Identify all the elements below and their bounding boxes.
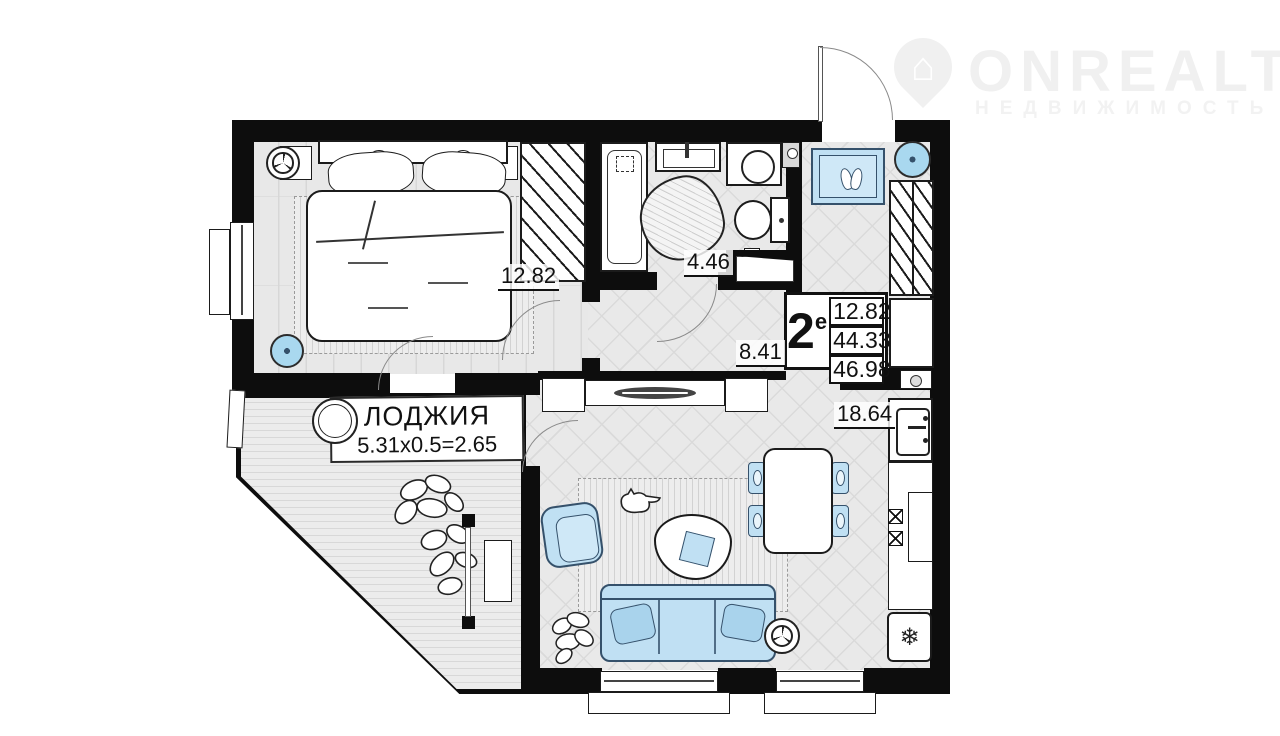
area-label-kitchen-living: 18.64 <box>834 402 895 429</box>
snowflake-icon: ❄ <box>889 614 930 660</box>
sofa <box>600 584 776 662</box>
console-right-cabinet <box>725 378 768 412</box>
loggia-title: ЛОДЖИЯ <box>364 400 491 432</box>
living-window-1 <box>600 671 718 692</box>
wall-bedroom-bottom-a <box>252 373 390 395</box>
plant-icon-living <box>548 608 600 666</box>
sofa-pillow-1 <box>609 602 658 646</box>
bedroom-window-sill <box>209 229 230 315</box>
washing-machine <box>726 142 782 186</box>
wall-bath-bottom-a <box>598 272 657 290</box>
area-label-bedroom: 12.82 <box>498 264 559 291</box>
loggia-bench <box>484 540 512 602</box>
wall-bottom-b <box>718 668 776 694</box>
unit-spec-table: 2е 12.82 44.33 46.98 <box>784 292 888 370</box>
watermark-subtitle: НЕДВИЖИМОСТЬ <box>975 98 1274 120</box>
loggia-left-window <box>226 390 245 449</box>
wall-left-lower <box>232 318 254 398</box>
area-label-hall: 8.41 <box>736 340 785 367</box>
loggia-door-jamb-bottom <box>462 616 475 629</box>
bath-black-cabinet <box>726 250 802 286</box>
sofa-pillow-2 <box>719 603 766 644</box>
unit-type-sup: е <box>815 311 827 333</box>
unit-type: 2е <box>787 295 827 367</box>
entry-shoe-mat <box>811 148 885 205</box>
entry-wardrobe <box>889 180 934 296</box>
toilet-tank <box>770 197 790 243</box>
cat-icon <box>616 486 664 518</box>
thermostat-icon <box>764 618 800 654</box>
entry-ceiling-lamp-icon <box>894 141 931 178</box>
loggia-partition-leaf <box>465 527 471 617</box>
kitchen-vent-box <box>900 370 932 389</box>
console-left-cabinet <box>542 378 585 412</box>
bedroom-ceiling-lamp-icon <box>270 334 304 368</box>
wall-bottom-c <box>864 668 950 694</box>
wall-left-upper <box>232 120 254 224</box>
wall-living-left <box>524 466 540 670</box>
living-window-1-sill <box>588 692 730 714</box>
living-window-2 <box>776 671 864 692</box>
loggia-label-circle <box>312 398 358 444</box>
entry-door-arc <box>820 47 893 120</box>
sprinkler-icon <box>266 146 300 180</box>
tv-console <box>585 380 725 406</box>
dining-chair-4 <box>831 505 849 537</box>
fridge: ❄ <box>887 612 932 662</box>
toilet-bowl <box>734 200 772 240</box>
wall-top-right <box>895 120 950 142</box>
watermark-brand: ONREALT <box>968 38 1280 105</box>
spec-area-apartment: 44.33 <box>829 326 884 355</box>
bedroom-wardrobe <box>520 142 586 282</box>
spec-area-total: 46.98 <box>829 355 884 384</box>
dining-chair-3 <box>831 462 849 494</box>
loggia-label-box: ЛОДЖИЯ 5.31x0.5=2.65 <box>330 395 525 463</box>
bath-corner-shelf <box>782 142 800 168</box>
kitchen-counter-block <box>908 492 933 562</box>
dining-table <box>763 448 833 554</box>
entry-closet <box>889 298 934 368</box>
living-window-2-sill <box>764 692 876 714</box>
spec-area-living: 12.82 <box>829 297 884 326</box>
wall-top-left <box>232 120 822 142</box>
bed-duvet <box>306 190 512 342</box>
wall-bedroom-bottom-b <box>455 373 540 395</box>
armchair <box>539 500 605 569</box>
coffee-table-tray <box>679 531 715 567</box>
watermark-pin-icon: ⌂ <box>888 34 958 104</box>
bathroom-sink <box>655 142 721 172</box>
unit-type-number: 2 <box>787 306 815 356</box>
area-label-bathroom: 4.46 <box>684 250 733 277</box>
wall-bottom-a <box>524 668 602 694</box>
floorplan-canvas: ⌂ ONREALT НЕДВИЖИМОСТЬ <box>0 0 1280 736</box>
kitchen-stove <box>884 505 910 555</box>
bedroom-window <box>230 222 254 320</box>
tv-icon <box>614 387 696 399</box>
loggia-calc: 5.31x0.5=2.65 <box>357 431 497 458</box>
loggia-door-jamb-top <box>462 514 475 527</box>
house-icon: ⌂ <box>911 47 935 87</box>
